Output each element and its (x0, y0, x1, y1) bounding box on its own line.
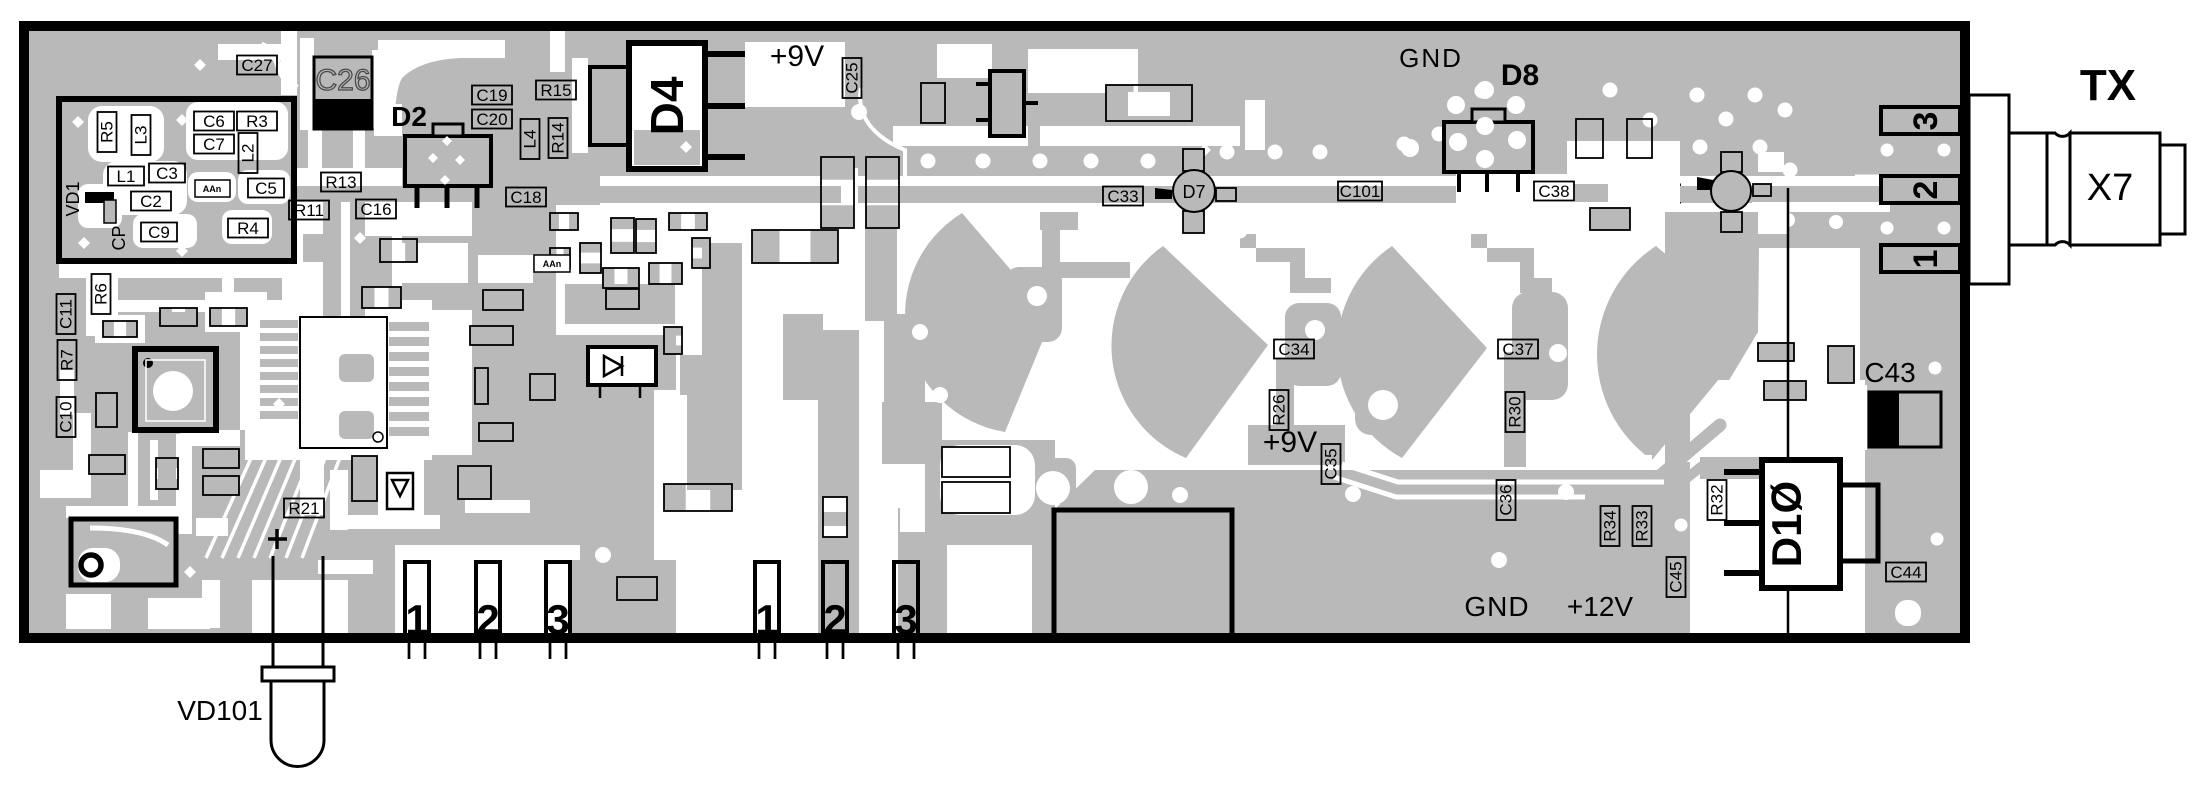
svg-text:C19: C19 (476, 86, 507, 105)
svg-text:R32: R32 (1708, 484, 1727, 515)
svg-text:AAn: AAn (203, 184, 222, 194)
svg-text:L3: L3 (132, 126, 151, 145)
svg-text:R5: R5 (98, 121, 117, 143)
svg-text:C11: C11 (57, 299, 76, 329)
svg-text:C10: C10 (57, 401, 76, 432)
svg-text:R33: R33 (1633, 510, 1652, 541)
svg-text:VD1: VD1 (63, 181, 83, 216)
svg-text:D7: D7 (1182, 182, 1205, 202)
svg-text:D8: D8 (1501, 59, 1539, 92)
svg-text:C26: C26 (315, 64, 370, 97)
svg-text:R34: R34 (1601, 510, 1620, 541)
svg-text:C38: C38 (1538, 182, 1569, 201)
svg-text:C5: C5 (255, 179, 277, 198)
svg-text:C101: C101 (1340, 182, 1381, 201)
svg-text:R30: R30 (1506, 396, 1525, 427)
svg-text:2: 2 (1907, 181, 1945, 200)
svg-text:CP: CP (109, 225, 129, 250)
svg-text:C27: C27 (241, 56, 272, 75)
svg-text:D4: D4 (641, 76, 693, 135)
svg-text:D1Ø: D1Ø (1763, 481, 1810, 567)
svg-text:GND: GND (1464, 591, 1529, 622)
svg-text:C37: C37 (1502, 340, 1533, 359)
svg-text:R13: R13 (325, 173, 356, 192)
svg-text:VD101: VD101 (177, 695, 263, 726)
svg-text:R15: R15 (540, 81, 571, 100)
svg-text:C2: C2 (140, 192, 162, 211)
svg-text:3: 3 (1907, 112, 1945, 131)
svg-text:R14: R14 (549, 122, 568, 153)
svg-text:1: 1 (1907, 250, 1945, 269)
svg-text:AAn: AAn (543, 259, 562, 269)
svg-text:C45: C45 (1667, 561, 1686, 592)
svg-text:R21: R21 (288, 499, 319, 518)
svg-text:C33: C33 (1107, 187, 1138, 206)
svg-text:TX: TX (2080, 61, 2136, 110)
svg-text:C7: C7 (203, 135, 225, 154)
svg-text:GND: GND (1399, 43, 1463, 73)
svg-text:C6: C6 (203, 112, 225, 131)
svg-text:C43: C43 (1864, 357, 1915, 388)
svg-text:R11: R11 (294, 201, 324, 220)
svg-text:R6: R6 (92, 283, 111, 305)
svg-text:R4: R4 (237, 219, 259, 238)
svg-text:C44: C44 (1890, 563, 1921, 582)
svg-text:L2: L2 (239, 144, 258, 163)
svg-text:R7: R7 (58, 349, 77, 371)
svg-text:C20: C20 (476, 110, 507, 129)
svg-text:R26: R26 (1270, 394, 1289, 425)
svg-text:L1: L1 (117, 167, 136, 186)
svg-text:C36: C36 (1497, 484, 1516, 515)
svg-text:L4: L4 (521, 130, 540, 149)
svg-text:C3: C3 (156, 164, 178, 183)
svg-text:C34: C34 (1278, 340, 1309, 359)
svg-text:D2: D2 (391, 101, 427, 132)
svg-text:C16: C16 (360, 200, 391, 219)
svg-text:+9V: +9V (1263, 426, 1317, 459)
svg-text:C25: C25 (843, 62, 862, 93)
svg-text:X7: X7 (2087, 167, 2133, 209)
svg-text:+9V: +9V (770, 40, 824, 73)
svg-text:R3: R3 (246, 112, 268, 131)
svg-text:C35: C35 (1322, 448, 1341, 479)
svg-text:C9: C9 (148, 223, 170, 242)
svg-text:C18: C18 (510, 188, 541, 207)
svg-text:+12V: +12V (1567, 591, 1633, 622)
